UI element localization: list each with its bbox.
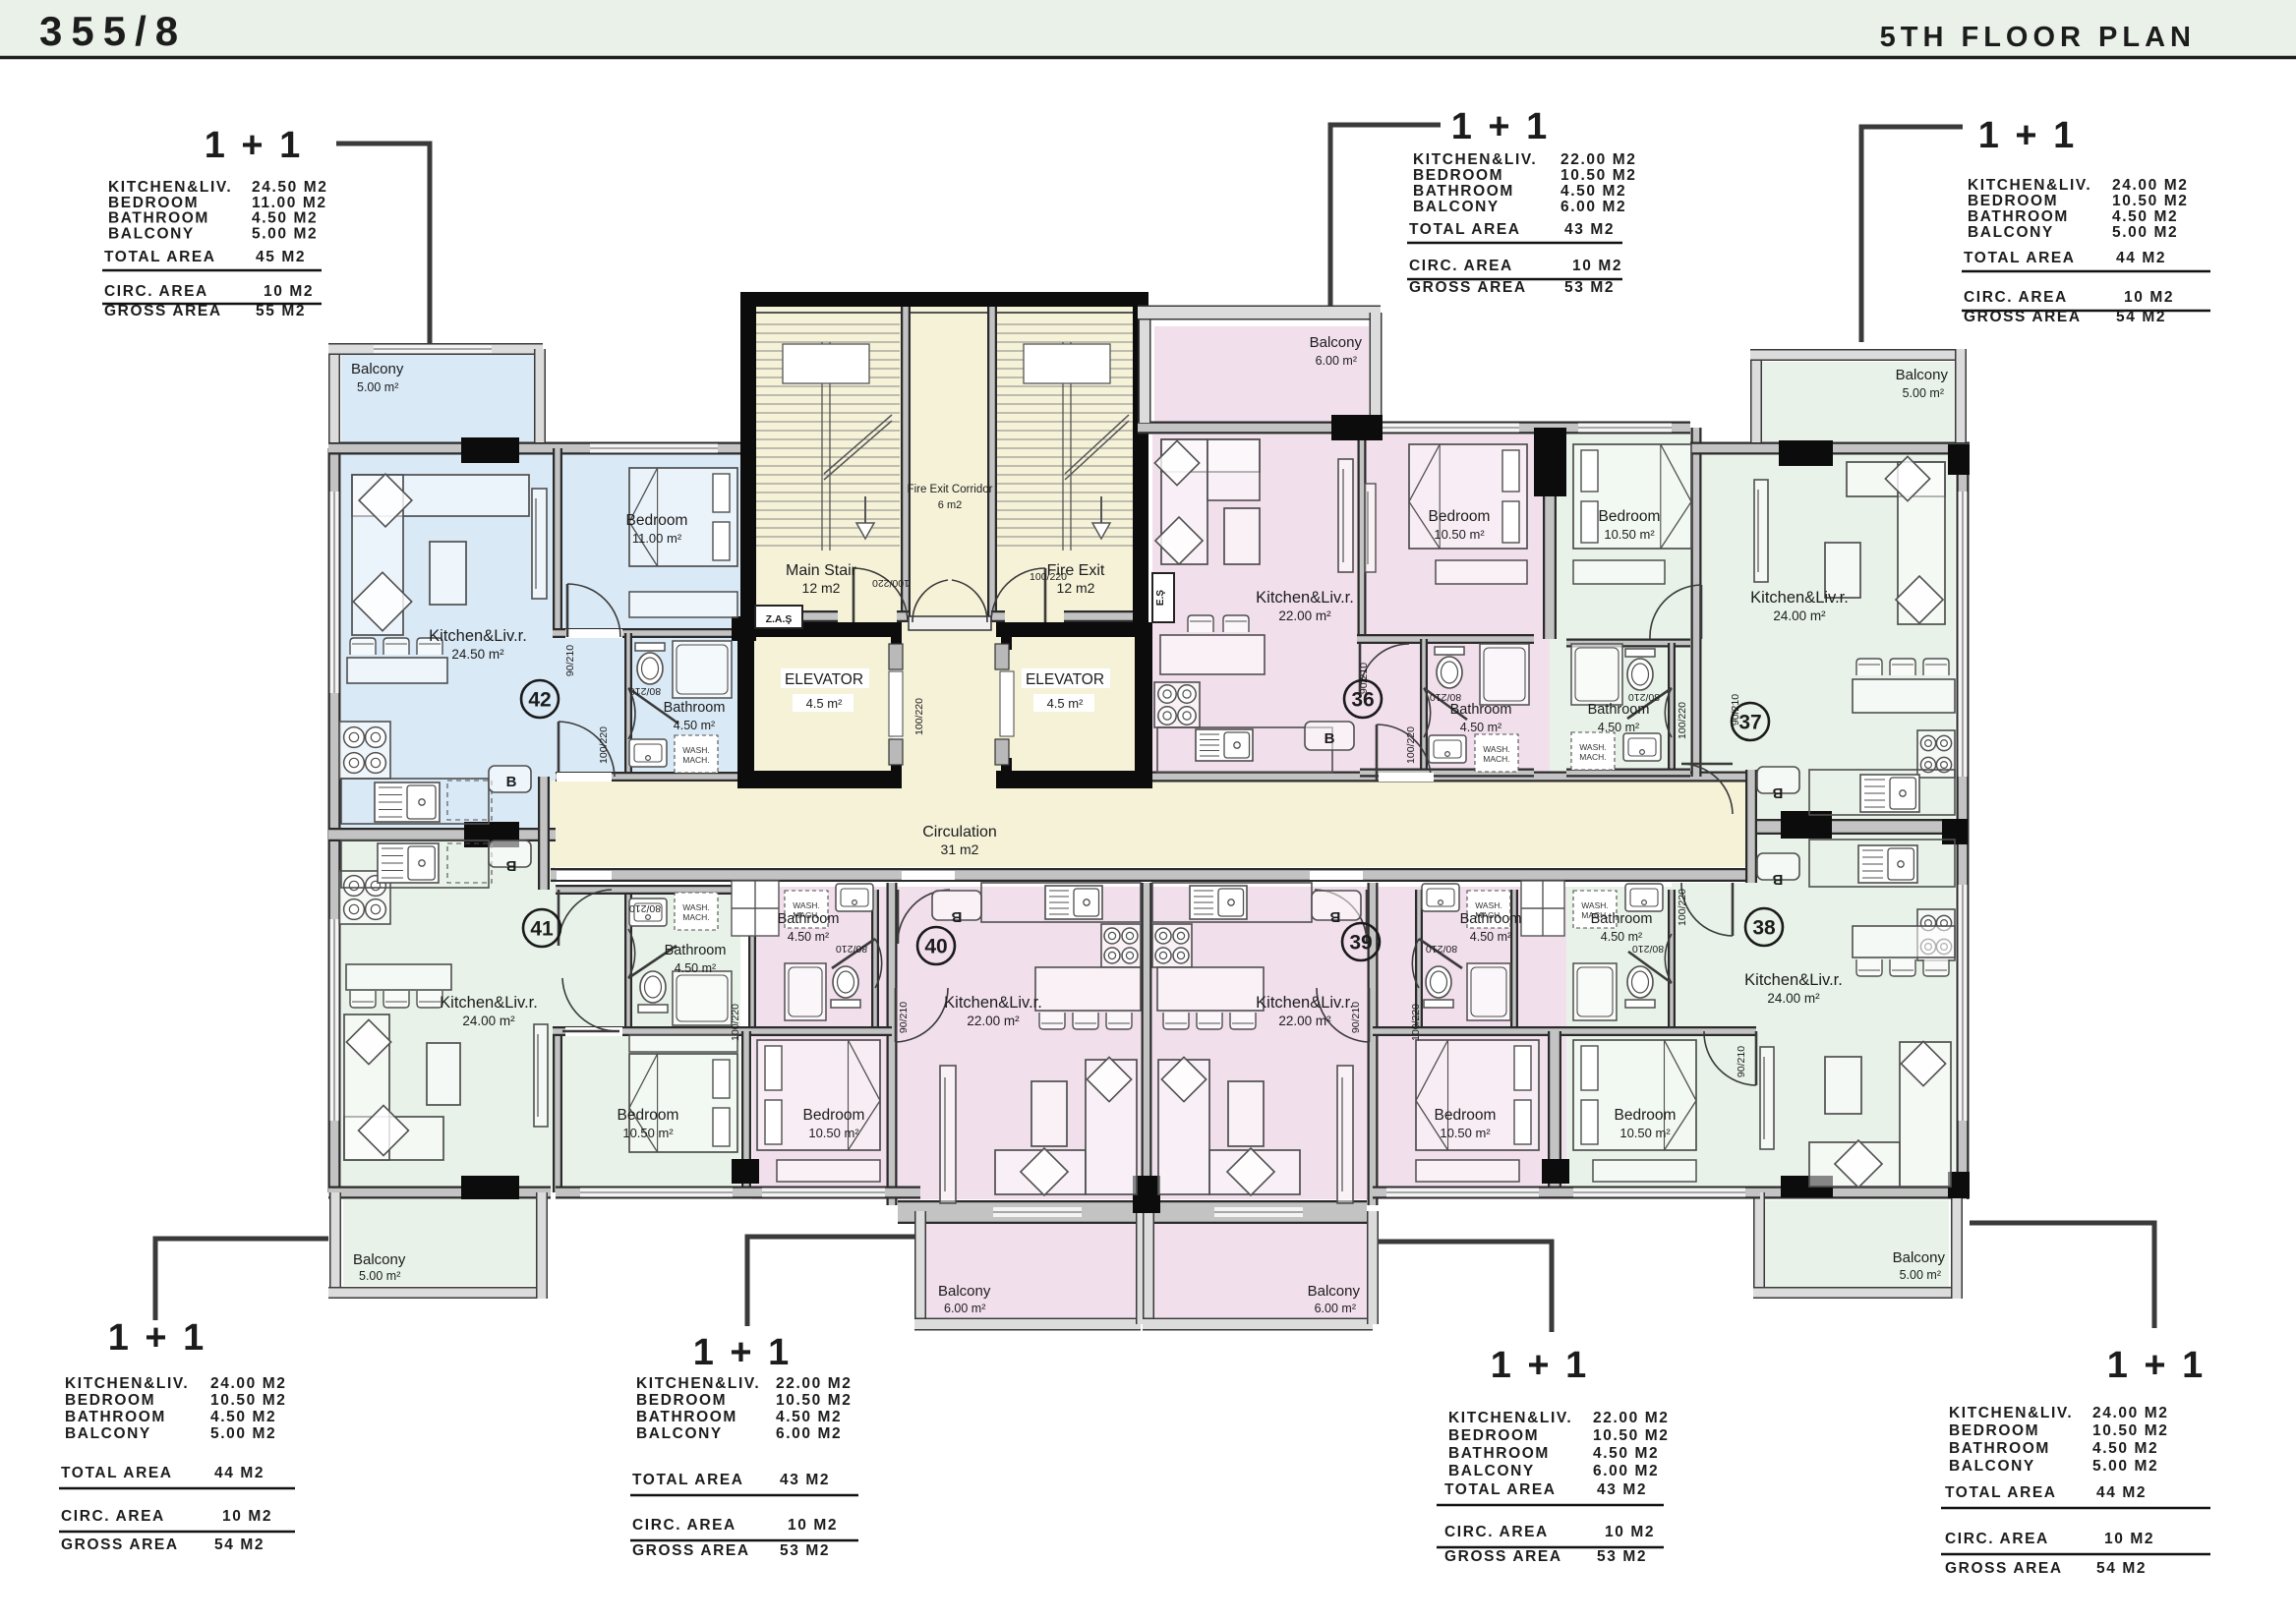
svg-text:4.50 m²: 4.50 m² [675, 961, 716, 975]
svg-text:B: B [1329, 908, 1340, 925]
svg-text:GROSS AREA: GROSS AREA [1444, 1548, 1562, 1565]
svg-text:TOTAL AREA: TOTAL AREA [1945, 1484, 2057, 1501]
svg-text:TOTAL AREA: TOTAL AREA [61, 1465, 173, 1481]
svg-text:GROSS AREA: GROSS AREA [1409, 279, 1527, 296]
svg-text:1 + 1: 1 + 1 [1491, 1345, 1590, 1386]
svg-text:22.00 m²: 22.00 m² [967, 1014, 1020, 1028]
svg-text:54 M2: 54 M2 [2116, 309, 2166, 325]
svg-text:6.00 M2: 6.00 M2 [776, 1425, 842, 1442]
svg-text:10 M2: 10 M2 [264, 283, 314, 300]
svg-text:CIRC. AREA: CIRC. AREA [61, 1508, 165, 1525]
svg-text:Kitchen&Liv.r.: Kitchen&Liv.r. [440, 994, 538, 1012]
svg-text:24.00 m²: 24.00 m² [1773, 609, 1826, 623]
svg-text:Kitchen&Liv.r.: Kitchen&Liv.r. [944, 994, 1042, 1012]
svg-text:10.50 M2: 10.50 M2 [776, 1392, 852, 1409]
svg-text:12 m2: 12 m2 [802, 580, 841, 596]
svg-text:KITCHEN&LIV.: KITCHEN&LIV. [636, 1375, 760, 1392]
svg-text:4.50 m²: 4.50 m² [674, 719, 715, 732]
svg-text:39: 39 [1349, 932, 1372, 955]
svg-text:GROSS AREA: GROSS AREA [1945, 1560, 2063, 1577]
svg-text:100/220: 100/220 [1030, 571, 1067, 583]
svg-text:Bedroom: Bedroom [1599, 508, 1661, 525]
svg-text:Bedroom: Bedroom [626, 512, 688, 529]
svg-text:5.00 m²: 5.00 m² [357, 380, 398, 394]
svg-text:Kitchen&Liv.r.: Kitchen&Liv.r. [429, 627, 527, 645]
svg-text:80/210: 80/210 [836, 943, 867, 955]
svg-text:355/8: 355/8 [39, 8, 187, 54]
svg-text:ELEVATOR: ELEVATOR [785, 671, 863, 688]
svg-text:6.00 M2: 6.00 M2 [1560, 199, 1626, 215]
svg-text:Kitchen&Liv.r.: Kitchen&Liv.r. [1744, 971, 1843, 989]
svg-text:BATHROOM: BATHROOM [1413, 183, 1514, 200]
svg-text:E.Ş: E.Ş [1155, 590, 1166, 606]
svg-text:90/210: 90/210 [1730, 694, 1741, 725]
svg-text:4.50 M2: 4.50 M2 [2092, 1440, 2158, 1457]
svg-text:43 M2: 43 M2 [1597, 1481, 1647, 1498]
svg-text:45 M2: 45 M2 [256, 249, 306, 265]
svg-text:BEDROOM: BEDROOM [1949, 1422, 2039, 1439]
svg-text:10.50 M2: 10.50 M2 [210, 1392, 286, 1409]
svg-text:BEDROOM: BEDROOM [108, 195, 199, 211]
svg-text:5.00 M2: 5.00 M2 [210, 1425, 276, 1442]
svg-text:B: B [1325, 730, 1335, 747]
svg-text:Bathroom: Bathroom [1588, 702, 1650, 718]
svg-text:WASH.: WASH. [1475, 900, 1502, 910]
svg-text:KITCHEN&LIV.: KITCHEN&LIV. [1448, 1410, 1572, 1426]
svg-text:11.00 M2: 11.00 M2 [252, 195, 327, 211]
svg-text:22.00 M2: 22.00 M2 [1560, 151, 1636, 168]
svg-text:22.00 m²: 22.00 m² [1278, 1014, 1331, 1028]
svg-text:10.50 m²: 10.50 m² [1604, 527, 1655, 542]
svg-text:CIRC. AREA: CIRC. AREA [1945, 1531, 2049, 1547]
svg-text:100/220: 100/220 [913, 698, 925, 735]
svg-text:BATHROOM: BATHROOM [1448, 1445, 1550, 1462]
svg-text:5.00 m²: 5.00 m² [1900, 1268, 1941, 1282]
svg-text:1 + 1: 1 + 1 [2107, 1345, 2207, 1386]
svg-text:10.50 M2: 10.50 M2 [2112, 193, 2188, 209]
svg-text:11.00 m²: 11.00 m² [632, 531, 682, 546]
svg-text:BEDROOM: BEDROOM [1968, 193, 2058, 209]
svg-text:10 M2: 10 M2 [222, 1508, 272, 1525]
svg-text:Balcony: Balcony [1893, 1249, 1946, 1266]
svg-text:BATHROOM: BATHROOM [65, 1409, 166, 1425]
svg-text:1 + 1: 1 + 1 [693, 1332, 793, 1373]
svg-text:4.50 M2: 4.50 M2 [1560, 183, 1626, 200]
svg-text:24.00 M2: 24.00 M2 [2112, 177, 2188, 194]
svg-text:CIRC. AREA: CIRC. AREA [1444, 1524, 1549, 1540]
svg-text:Bedroom: Bedroom [618, 1107, 679, 1124]
svg-text:10 M2: 10 M2 [788, 1517, 838, 1534]
svg-text:24.00 M2: 24.00 M2 [210, 1375, 286, 1392]
svg-text:100/220: 100/220 [598, 726, 610, 764]
svg-text:MACH.: MACH. [682, 755, 709, 765]
svg-text:Bedroom: Bedroom [803, 1107, 865, 1124]
svg-text:BALCONY: BALCONY [108, 225, 195, 242]
svg-text:4.50 M2: 4.50 M2 [1593, 1445, 1659, 1462]
svg-text:6.00 m²: 6.00 m² [1316, 354, 1357, 368]
svg-text:5.00 M2: 5.00 M2 [2112, 224, 2178, 241]
svg-text:Main Stair: Main Stair [786, 562, 857, 579]
svg-text:10.50 m²: 10.50 m² [1440, 1126, 1491, 1140]
svg-text:22.00 M2: 22.00 M2 [1593, 1410, 1669, 1426]
svg-text:10 M2: 10 M2 [1572, 258, 1622, 274]
svg-text:53 M2: 53 M2 [1564, 279, 1615, 296]
svg-text:Balcony: Balcony [353, 1251, 406, 1268]
svg-text:Circulation: Circulation [922, 824, 997, 840]
svg-text:B: B [506, 774, 517, 790]
svg-text:Z.A.Ş: Z.A.Ş [766, 613, 793, 625]
svg-text:100/220: 100/220 [1677, 702, 1688, 739]
svg-text:GROSS AREA: GROSS AREA [632, 1542, 750, 1559]
svg-text:10.50 M2: 10.50 M2 [2092, 1422, 2168, 1439]
svg-text:22.00 M2: 22.00 M2 [776, 1375, 852, 1392]
svg-text:KITCHEN&LIV.: KITCHEN&LIV. [108, 179, 232, 196]
svg-text:55 M2: 55 M2 [256, 303, 306, 319]
svg-text:Bedroom: Bedroom [1429, 508, 1491, 525]
svg-text:90/210: 90/210 [1350, 1002, 1362, 1033]
svg-text:4.50 m²: 4.50 m² [1460, 721, 1501, 734]
svg-text:43 M2: 43 M2 [1564, 221, 1615, 238]
svg-text:10.50 m²: 10.50 m² [1619, 1126, 1671, 1140]
svg-text:Bathroom: Bathroom [1450, 702, 1512, 718]
svg-text:BEDROOM: BEDROOM [65, 1392, 155, 1409]
svg-text:B: B [1772, 784, 1783, 801]
svg-text:GROSS AREA: GROSS AREA [61, 1536, 179, 1553]
svg-text:B: B [951, 908, 962, 925]
svg-text:B: B [505, 857, 516, 874]
svg-text:TOTAL AREA: TOTAL AREA [1409, 221, 1521, 238]
svg-text:Kitchen&Liv.r.: Kitchen&Liv.r. [1750, 589, 1849, 607]
svg-text:MACH.: MACH. [682, 912, 709, 922]
svg-text:54 M2: 54 M2 [214, 1536, 265, 1553]
svg-text:1 + 1: 1 + 1 [205, 125, 304, 166]
svg-text:Balcony: Balcony [351, 361, 404, 377]
svg-text:5TH FLOOR PLAN: 5TH FLOOR PLAN [1880, 22, 2196, 53]
svg-text:24.00 m²: 24.00 m² [1767, 991, 1820, 1006]
svg-text:KITCHEN&LIV.: KITCHEN&LIV. [1968, 177, 2091, 194]
svg-text:TOTAL AREA: TOTAL AREA [1444, 1481, 1557, 1498]
svg-text:BALCONY: BALCONY [65, 1425, 151, 1442]
svg-text:10.50 m²: 10.50 m² [808, 1126, 859, 1140]
svg-text:24.50 M2: 24.50 M2 [252, 179, 327, 196]
svg-text:10.50 m²: 10.50 m² [1434, 527, 1485, 542]
svg-text:Bathroom: Bathroom [665, 943, 727, 958]
svg-text:Fire Exit Corridor: Fire Exit Corridor [908, 484, 993, 495]
svg-text:100/220: 100/220 [1410, 1004, 1422, 1041]
svg-text:BALCONY: BALCONY [1413, 199, 1500, 215]
svg-text:10 M2: 10 M2 [2104, 1531, 2154, 1547]
svg-text:5.00 m²: 5.00 m² [359, 1269, 400, 1283]
svg-text:Bathroom: Bathroom [1460, 911, 1522, 927]
svg-text:BATHROOM: BATHROOM [1968, 208, 2069, 225]
svg-text:90/210: 90/210 [564, 645, 576, 676]
svg-text:80/210: 80/210 [1628, 691, 1660, 703]
svg-text:54 M2: 54 M2 [2096, 1560, 2147, 1577]
svg-text:BALCONY: BALCONY [1949, 1458, 2035, 1475]
svg-text:4.50 M2: 4.50 M2 [776, 1409, 842, 1425]
svg-text:1 + 1: 1 + 1 [1451, 106, 1551, 147]
svg-text:Balcony: Balcony [938, 1283, 991, 1300]
svg-text:Balcony: Balcony [1310, 334, 1363, 351]
svg-text:4.50 m²: 4.50 m² [788, 930, 829, 944]
svg-text:44 M2: 44 M2 [2116, 250, 2166, 266]
svg-text:4.50 M2: 4.50 M2 [252, 210, 318, 227]
svg-text:1 + 1: 1 + 1 [1978, 115, 2078, 156]
svg-text:80/210: 80/210 [1632, 943, 1664, 955]
svg-text:24.00 m²: 24.00 m² [462, 1014, 515, 1028]
svg-text:TOTAL AREA: TOTAL AREA [632, 1472, 744, 1488]
svg-text:WASH.: WASH. [1483, 744, 1510, 754]
svg-text:6.00 M2: 6.00 M2 [1593, 1463, 1659, 1479]
svg-text:Kitchen&Liv.r.: Kitchen&Liv.r. [1256, 994, 1354, 1012]
svg-text:5.00 M2: 5.00 M2 [252, 225, 318, 242]
svg-text:6.00 m²: 6.00 m² [1315, 1302, 1356, 1315]
svg-text:Balcony: Balcony [1896, 367, 1949, 383]
svg-text:Kitchen&Liv.r.: Kitchen&Liv.r. [1256, 589, 1354, 607]
svg-text:CIRC. AREA: CIRC. AREA [1409, 258, 1513, 274]
svg-text:44 M2: 44 M2 [2096, 1484, 2147, 1501]
svg-text:100/220: 100/220 [1405, 726, 1417, 764]
svg-text:5.00 m²: 5.00 m² [1903, 386, 1944, 400]
svg-text:CIRC. AREA: CIRC. AREA [104, 283, 208, 300]
svg-text:KITCHEN&LIV.: KITCHEN&LIV. [1413, 151, 1537, 168]
svg-text:BALCONY: BALCONY [636, 1425, 723, 1442]
svg-text:TOTAL AREA: TOTAL AREA [1964, 250, 2076, 266]
svg-text:4.50 m²: 4.50 m² [1598, 721, 1639, 734]
svg-text:1 + 1: 1 + 1 [108, 1317, 207, 1359]
svg-text:22.00 m²: 22.00 m² [1278, 609, 1331, 623]
svg-text:100/220: 100/220 [1677, 889, 1688, 926]
svg-text:WASH.: WASH. [1581, 900, 1609, 910]
svg-text:Bedroom: Bedroom [1435, 1107, 1497, 1124]
svg-text:4.50 m²: 4.50 m² [1470, 930, 1511, 944]
svg-text:BEDROOM: BEDROOM [1413, 167, 1503, 184]
svg-text:Bathroom: Bathroom [1591, 911, 1653, 927]
svg-text:KITCHEN&LIV.: KITCHEN&LIV. [1949, 1405, 2073, 1421]
svg-text:GROSS AREA: GROSS AREA [1964, 309, 2082, 325]
svg-text:Bathroom: Bathroom [664, 700, 726, 716]
svg-text:CIRC. AREA: CIRC. AREA [632, 1517, 736, 1534]
svg-text:BATHROOM: BATHROOM [1949, 1440, 2050, 1457]
svg-text:31 m2: 31 m2 [941, 841, 979, 857]
svg-text:90/210: 90/210 [1358, 663, 1370, 694]
svg-text:WASH.: WASH. [1579, 742, 1607, 752]
svg-text:80/210: 80/210 [629, 685, 661, 697]
svg-text:WASH.: WASH. [682, 745, 710, 755]
svg-text:BATHROOM: BATHROOM [108, 210, 209, 227]
svg-text:6 m2: 6 m2 [938, 499, 962, 511]
svg-text:80/210: 80/210 [629, 902, 661, 914]
svg-text:BATHROOM: BATHROOM [636, 1409, 737, 1425]
svg-text:100/220: 100/220 [872, 577, 910, 589]
svg-text:40: 40 [924, 936, 947, 958]
svg-text:TOTAL AREA: TOTAL AREA [104, 249, 216, 265]
svg-text:43 M2: 43 M2 [780, 1472, 830, 1488]
svg-text:42: 42 [528, 689, 551, 712]
svg-text:44 M2: 44 M2 [214, 1465, 265, 1481]
svg-text:5.00 M2: 5.00 M2 [2092, 1458, 2158, 1475]
svg-text:53 M2: 53 M2 [780, 1542, 830, 1559]
svg-text:38: 38 [1752, 917, 1776, 940]
svg-text:GROSS AREA: GROSS AREA [104, 303, 222, 319]
svg-text:4.50 M2: 4.50 M2 [210, 1409, 276, 1425]
svg-text:41: 41 [530, 918, 554, 941]
svg-text:BEDROOM: BEDROOM [636, 1392, 727, 1409]
svg-text:WASH.: WASH. [793, 900, 820, 910]
svg-text:90/210: 90/210 [1736, 1046, 1747, 1077]
svg-text:Balcony: Balcony [1308, 1283, 1361, 1300]
svg-text:KITCHEN&LIV.: KITCHEN&LIV. [65, 1375, 189, 1392]
svg-text:10.50 M2: 10.50 M2 [1593, 1427, 1669, 1444]
svg-text:10.50 m²: 10.50 m² [622, 1126, 674, 1140]
svg-text:BALCONY: BALCONY [1448, 1463, 1535, 1479]
svg-text:100/220: 100/220 [730, 1004, 741, 1041]
svg-text:ELEVATOR: ELEVATOR [1026, 671, 1104, 688]
svg-text:WASH.: WASH. [682, 902, 710, 912]
svg-text:10 M2: 10 M2 [2124, 289, 2174, 306]
svg-text:Bedroom: Bedroom [1615, 1107, 1677, 1124]
svg-text:B: B [1772, 871, 1783, 888]
svg-text:BALCONY: BALCONY [1968, 224, 2054, 241]
svg-text:10.50 M2: 10.50 M2 [1560, 167, 1636, 184]
svg-text:53 M2: 53 M2 [1597, 1548, 1647, 1565]
svg-text:BEDROOM: BEDROOM [1448, 1427, 1539, 1444]
svg-text:4.50 m²: 4.50 m² [1601, 930, 1642, 944]
svg-text:90/210: 90/210 [898, 1002, 910, 1033]
svg-text:4.5 m²: 4.5 m² [806, 696, 844, 711]
svg-text:80/210: 80/210 [1430, 691, 1461, 703]
svg-text:80/210: 80/210 [1426, 943, 1457, 955]
svg-text:6.00 m²: 6.00 m² [944, 1302, 985, 1315]
svg-text:37: 37 [1738, 712, 1761, 734]
svg-text:10 M2: 10 M2 [1605, 1524, 1655, 1540]
svg-text:MACH.: MACH. [1483, 754, 1509, 764]
svg-text:4.50 M2: 4.50 M2 [2112, 208, 2178, 225]
svg-text:MACH.: MACH. [1579, 752, 1606, 762]
svg-text:24.50 m²: 24.50 m² [451, 647, 504, 662]
svg-text:24.00 M2: 24.00 M2 [2092, 1405, 2168, 1421]
svg-text:4.5 m²: 4.5 m² [1047, 696, 1085, 711]
svg-text:Bathroom: Bathroom [778, 911, 840, 927]
svg-text:CIRC. AREA: CIRC. AREA [1964, 289, 2068, 306]
